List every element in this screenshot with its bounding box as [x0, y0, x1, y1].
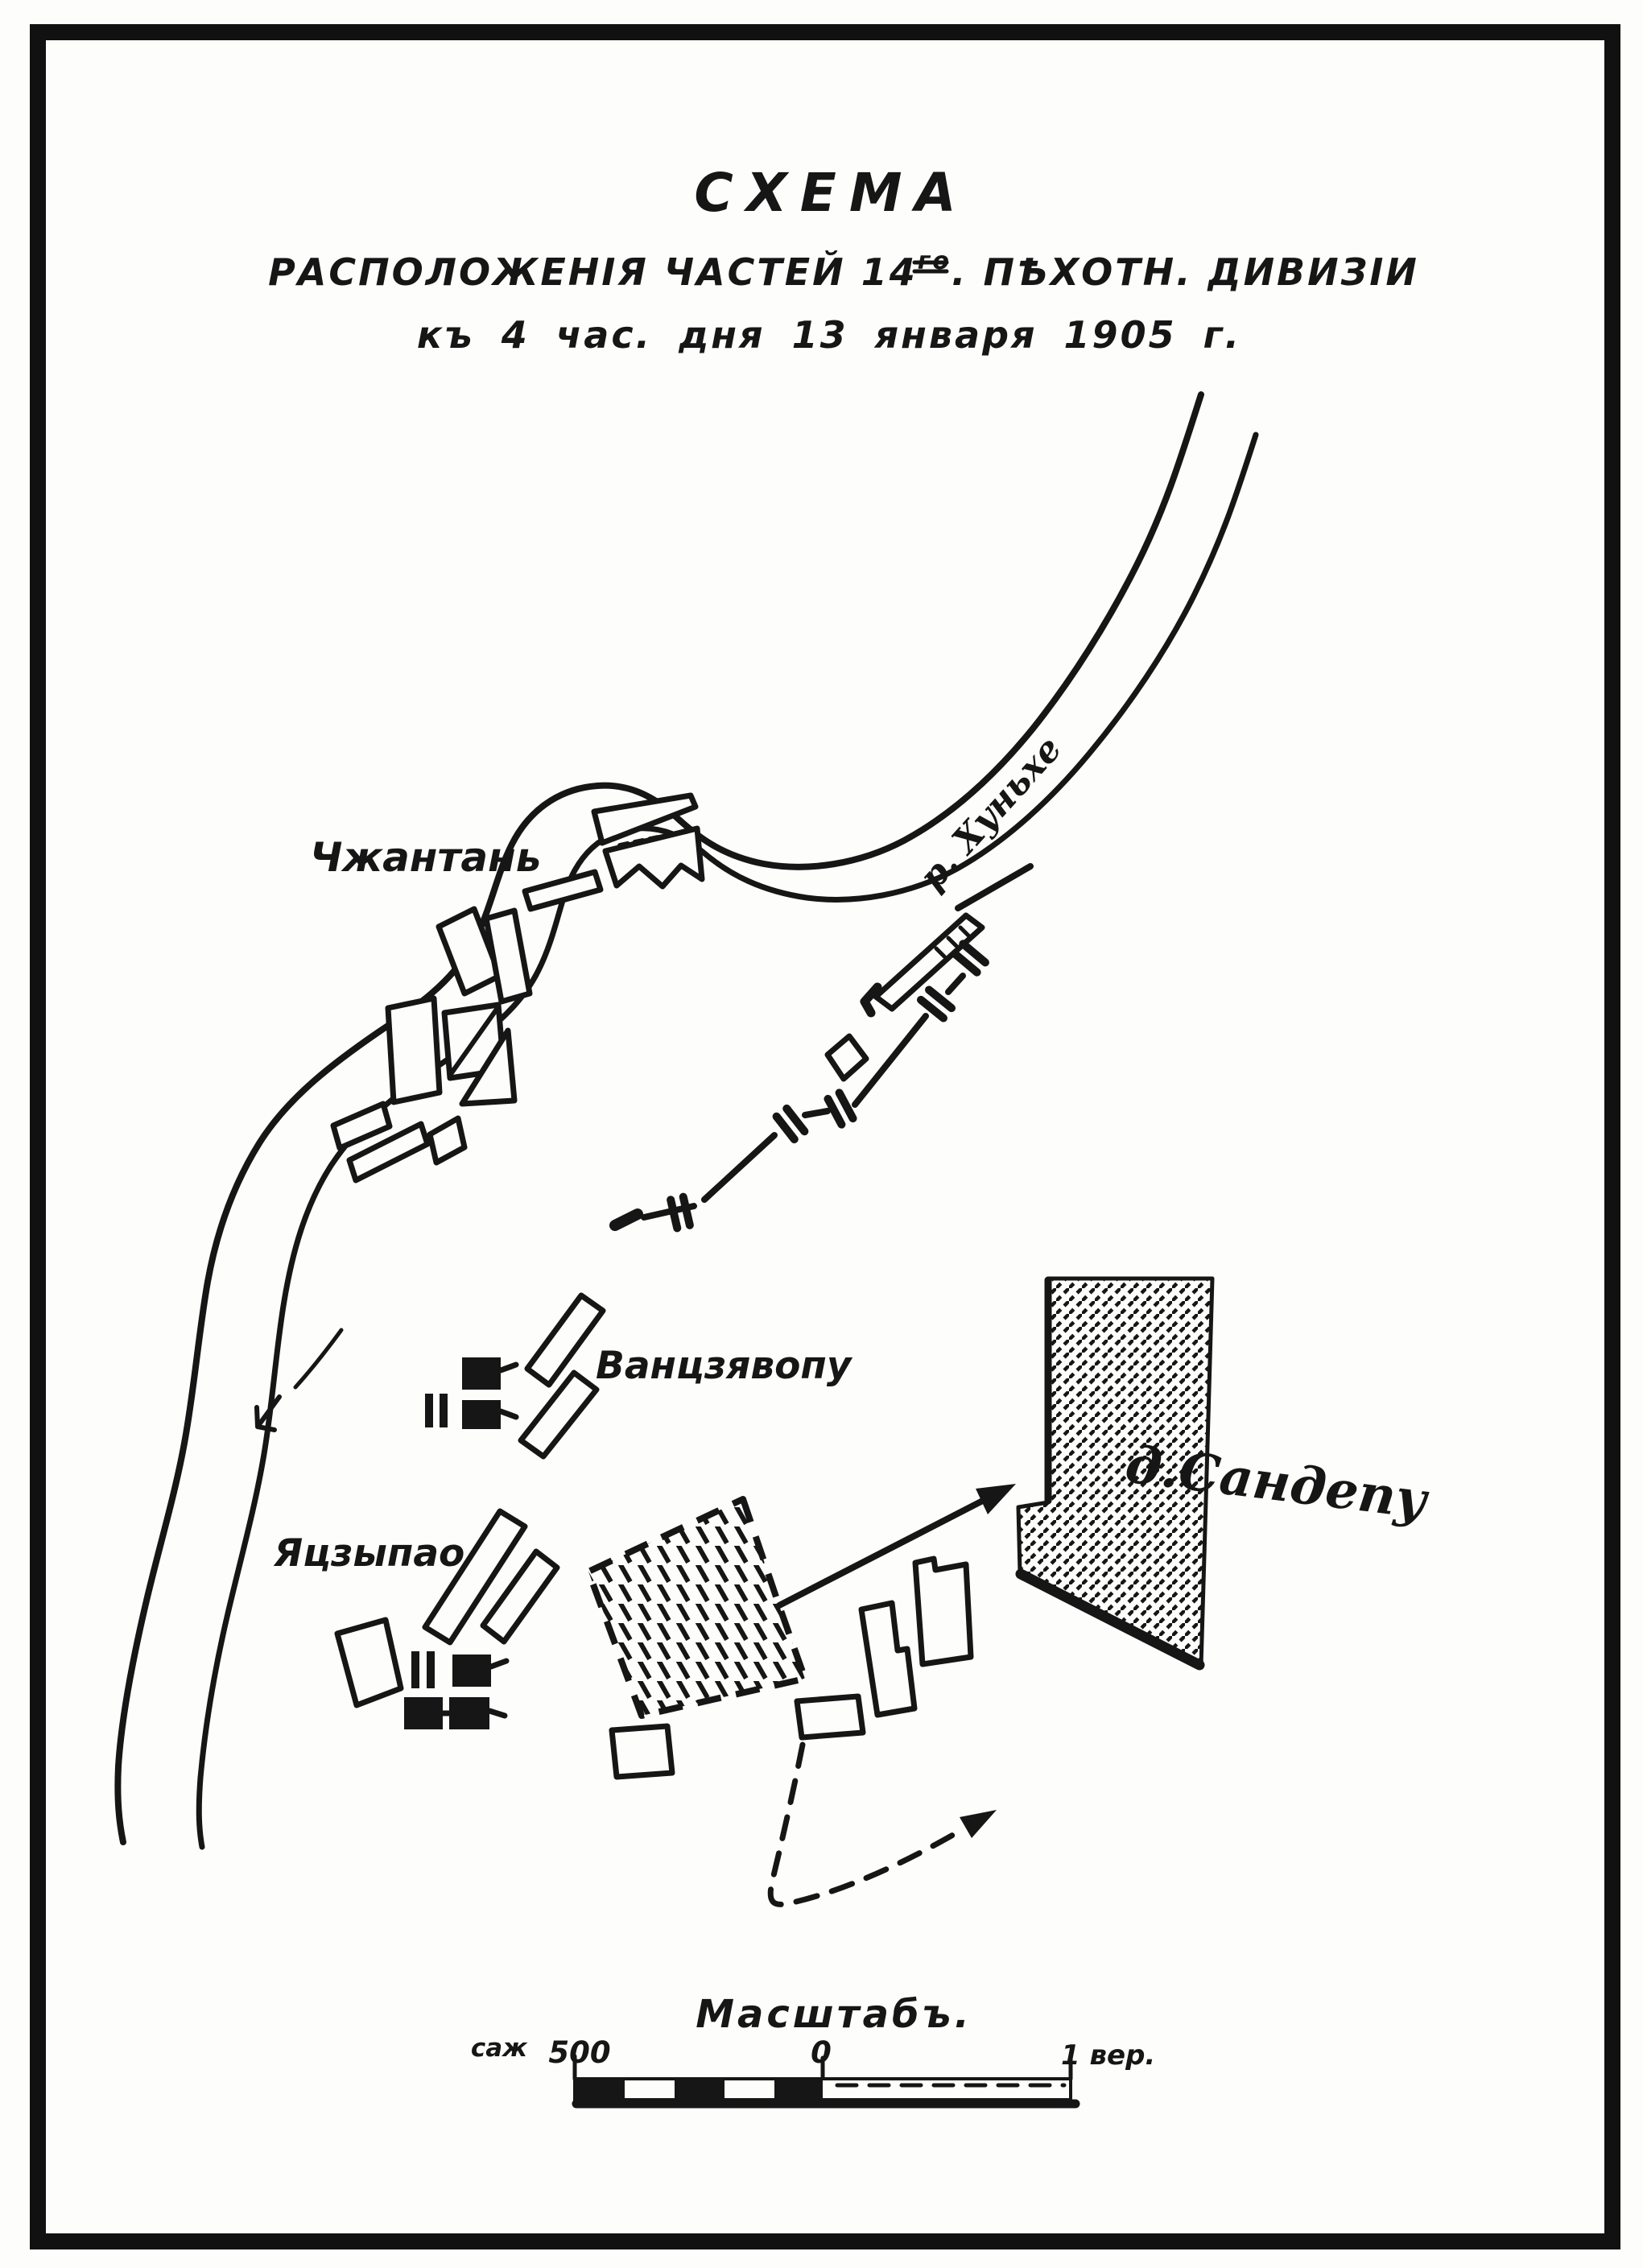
subtitle-pre: РАСПОЛОЖЕНІЯ ЧАСТЕЙ 14	[268, 250, 918, 294]
village-yatszypao-label: Яцзыпао	[273, 1531, 464, 1576]
double-bar-icon	[411, 1651, 435, 1688]
scale-title: Масштабъ.	[696, 1992, 972, 2037]
occupied-position-area	[588, 1499, 971, 1777]
scale-bar: Масштабъ. саж 500 0 1 вер.	[471, 1992, 1155, 2104]
scale-ticks	[575, 2056, 1071, 2079]
village-sandepu: д.Сандепу	[1018, 1279, 1432, 1667]
scale-segment	[575, 2079, 625, 2100]
unit-marker-icon	[452, 1655, 506, 1687]
building	[861, 1603, 914, 1715]
unit-marker-icon	[462, 1400, 516, 1429]
double-bar-tick-icon	[777, 1109, 805, 1139]
unit-bar-icon	[615, 1214, 638, 1225]
scale-left-value: 500	[548, 2035, 610, 2070]
double-bar-tick-icon	[671, 1197, 690, 1229]
building	[527, 1295, 603, 1385]
river-sandbar-line	[295, 1330, 341, 1387]
building	[915, 1559, 971, 1664]
village-chzhantan-label: Чжантань	[310, 834, 541, 881]
double-bar-icon	[425, 1394, 448, 1427]
building	[430, 1118, 464, 1163]
movement-arrow-dashed	[770, 1745, 997, 1904]
riverside-buildings	[828, 915, 982, 1079]
scale-unit-left: саж	[471, 2034, 528, 2063]
village-chzhantan: Чжантань	[310, 795, 702, 1180]
map-date-line: къ 4 час. дня 13 января 1905 г.	[417, 313, 1241, 357]
subtitle-post: . ПѢХОТН. ДИВИЗІИ	[952, 250, 1419, 294]
map-subtitle: РАСПОЛОЖЕНІЯ ЧАСТЕЙ 14го. ПѢХОТН. ДИВИЗІ…	[268, 247, 1419, 294]
map-title: СХЕМА	[694, 162, 968, 224]
unit-marker-icon	[462, 1357, 516, 1390]
village-yatszypao: Яцзыпао	[273, 1511, 557, 1729]
map-scan: СХЕМА РАСПОЛОЖЕНІЯ ЧАСТЕЙ 14го. ПѢХОТН. …	[0, 0, 1643, 2268]
scale-segment	[675, 2079, 724, 2100]
building	[388, 998, 440, 1102]
building-small	[828, 1036, 866, 1079]
map-page: СХЕМА РАСПОЛОЖЕНІЯ ЧАСТЕЙ 14го. ПѢХОТН. …	[0, 0, 1643, 2268]
river-label: р. Хуньхе	[911, 729, 1070, 898]
village-vantszyavopu-label: Ванцзявопу	[596, 1344, 853, 1388]
position-hatched-polygon	[588, 1499, 805, 1716]
building	[521, 1373, 597, 1456]
unit-marker-icon	[404, 1697, 443, 1729]
building	[797, 1696, 863, 1737]
village-vantszyavopu: Ванцзявопу	[425, 1295, 853, 1456]
scale-segment	[774, 2079, 823, 2100]
double-bar-tick-icon	[828, 1093, 852, 1124]
scale-right-value: 1 вер.	[1061, 2039, 1155, 2072]
building	[486, 911, 530, 1002]
unit-marker-icon	[443, 1697, 505, 1729]
building	[612, 1726, 672, 1777]
advance-arrow-solid	[779, 1484, 1016, 1605]
title-block: СХЕМА РАСПОЛОЖЕНІЯ ЧАСТЕЙ 14го. ПѢХОТН. …	[268, 162, 1419, 357]
building	[337, 1620, 401, 1705]
page-border	[38, 32, 1612, 2241]
